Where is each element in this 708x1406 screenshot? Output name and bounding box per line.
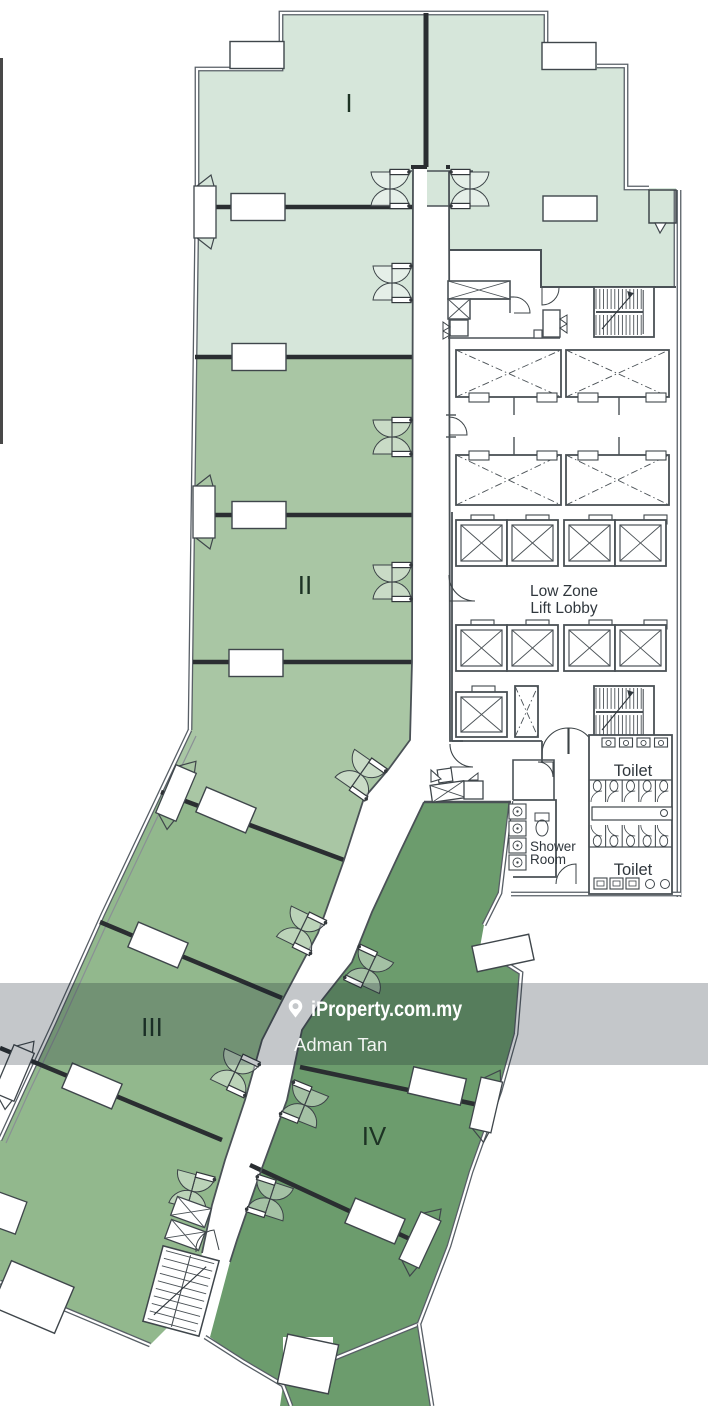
svg-text:Toilet: Toilet bbox=[614, 762, 653, 780]
svg-text:IV: IV bbox=[362, 1121, 387, 1151]
svg-text:II: II bbox=[298, 570, 312, 600]
svg-text:I: I bbox=[345, 88, 352, 118]
svg-text:Low Zone: Low Zone bbox=[530, 583, 598, 600]
svg-text:Room: Room bbox=[530, 852, 566, 867]
svg-text:Lift Lobby: Lift Lobby bbox=[530, 600, 597, 617]
svg-text:Toilet: Toilet bbox=[614, 861, 653, 879]
